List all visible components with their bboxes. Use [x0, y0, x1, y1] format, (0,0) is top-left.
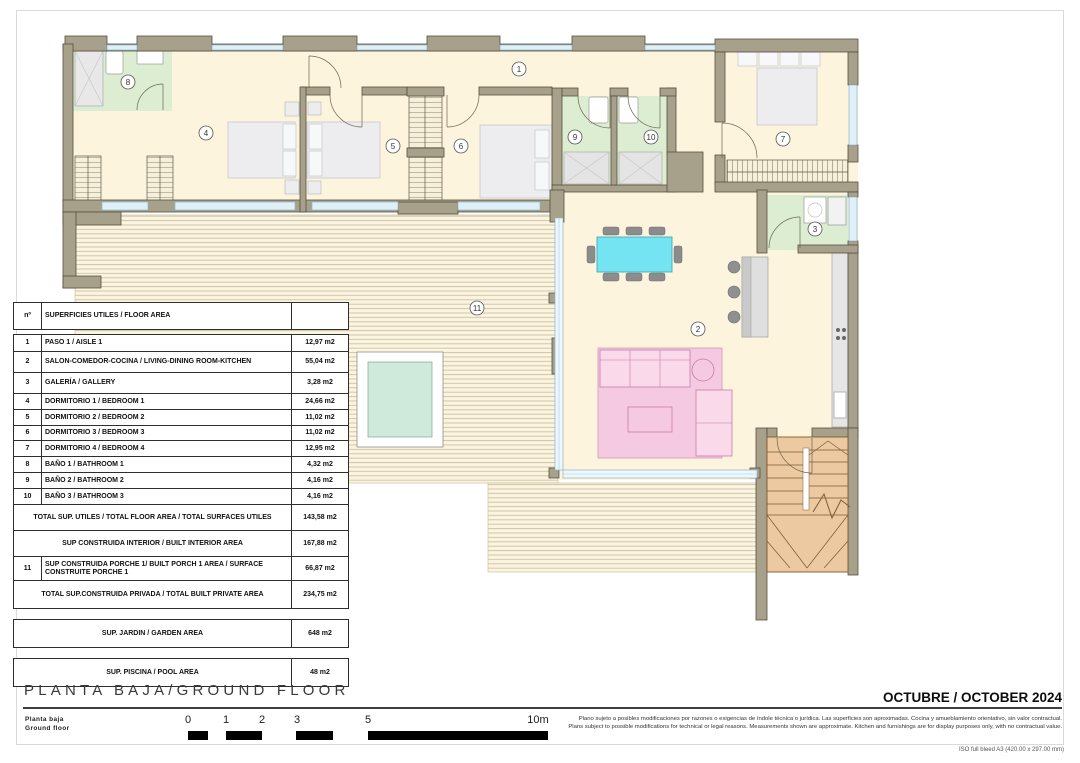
lounge-set: [598, 348, 732, 458]
room-label-8: 8: [121, 75, 135, 89]
header-area-col: [291, 303, 348, 329]
floor-area-table: nº SUPERFICIES UTILES / FLOOR AREA 1 PAS…: [13, 302, 349, 687]
area-table-header: nº SUPERFICIES UTILES / FLOOR AREA: [13, 302, 349, 330]
disclaimer-es: Plano sujeto a posibles modificaciones p…: [562, 716, 1062, 724]
table-row: 1 PASO 1 / AISLE 1 12,97 m2: [14, 335, 348, 351]
svg-text:8: 8: [126, 78, 131, 87]
table-row: 10 BAÑO 3 / BATHROOM 3 4,16 m2: [14, 488, 348, 504]
room-label-1: 1: [512, 62, 526, 76]
scale-segment: [188, 731, 208, 740]
room-label-6: 6: [454, 139, 468, 153]
svg-text:10: 10: [647, 133, 656, 142]
floor-name-es: Planta baja: [25, 715, 70, 724]
room-label-3: 3: [808, 222, 822, 236]
header-label-col: SUPERFICIES UTILES / FLOOR AREA: [41, 303, 291, 329]
scale-segment: [296, 731, 333, 740]
porch-row: 11 SUP CONSTRUIDA PORCHE 1/ BUILT PORCH …: [14, 556, 348, 580]
svg-text:9: 9: [573, 133, 578, 142]
table-row: 9 BAÑO 2 / BATHROOM 2 4,16 m2: [14, 472, 348, 488]
scale-segment: [368, 731, 548, 740]
svg-text:2: 2: [696, 325, 701, 334]
svg-text:11: 11: [473, 304, 482, 313]
scale-tick-0: 0: [185, 714, 191, 726]
scale-tick-10m: 10m: [527, 714, 548, 726]
total-private-row: TOTAL SUP.CONSTRUIDA PRIVADA / TOTAL BUI…: [14, 580, 348, 608]
scale-tick-3: 3: [294, 714, 300, 726]
drawing-sheet: 1 2 3 4 5 6 7 8 9 10 11 nº SUPERFICIES U…: [0, 0, 1080, 763]
svg-text:3: 3: [813, 225, 818, 234]
title-divider-line: [23, 707, 1062, 709]
scale-segment: [226, 731, 262, 740]
room-label-9: 9: [568, 130, 582, 144]
table-row: 5 DORMITORIO 2 / BEDROOM 2 11,02 m2: [14, 409, 348, 425]
disclaimer-en: Plans subject to possible modifications …: [562, 724, 1062, 732]
page-title: PLANTA BAJA/GROUND FLOOR: [24, 682, 350, 699]
table-row: 2 SALON-COMEDOR-COCINA / LIVING-DINING R…: [14, 351, 348, 372]
scale-tick-1: 1: [223, 714, 229, 726]
svg-text:6: 6: [459, 142, 464, 151]
room-label-11: 11: [470, 301, 484, 315]
table-row: 3 GALERÍA / GALLERY 3,28 m2: [14, 372, 348, 393]
room-label-7: 7: [776, 132, 790, 146]
scale-tick-2: 2: [259, 714, 265, 726]
area-table-body: 1 PASO 1 / AISLE 1 12,97 m2 2 SALON-COME…: [13, 334, 349, 609]
built-interior-row: SUP CONSTRUIDA INTERIOR / BUILT INTERIOR…: [14, 530, 348, 556]
room-label-4: 4: [199, 126, 213, 140]
table-row: 4 DORMITORIO 1 / BEDROOM 1 24,66 m2: [14, 393, 348, 409]
room-label-10: 10: [644, 130, 658, 144]
svg-text:4: 4: [204, 129, 209, 138]
scale-tick-5: 5: [365, 714, 371, 726]
total-floor-area-row: TOTAL SUP. UTILES / TOTAL FLOOR AREA / T…: [14, 504, 348, 530]
table-row: 8 BAÑO 1 / BATHROOM 1 4,32 m2: [14, 456, 348, 472]
staircase: [767, 437, 850, 572]
floor-name-en: Ground floor: [25, 724, 70, 733]
table-row: 7 DORMITORIO 4 / BEDROOM 4 12,95 m2: [14, 440, 348, 456]
svg-text:1: 1: [517, 65, 522, 74]
paper-size-note: ISO full bleed A3 (420.00 x 297.00 mm): [959, 747, 1064, 753]
drawing-date: OCTUBRE / OCTOBER 2024: [883, 690, 1062, 705]
pool: [357, 352, 443, 447]
table-row: 6 DORMITORIO 3 / BEDROOM 3 11,02 m2: [14, 425, 348, 440]
room-label-2: 2: [691, 322, 705, 336]
disclaimer-text: Plano sujeto a posibles modificaciones p…: [562, 716, 1062, 731]
garden-area-box: SUP. JARDIN / GARDEN AREA 648 m2: [13, 619, 349, 648]
room-label-5: 5: [386, 139, 400, 153]
kitchen-counter: [832, 253, 848, 427]
floor-name-label: Planta baja Ground floor: [25, 715, 70, 733]
laundry-appliances: [804, 197, 846, 225]
svg-text:5: 5: [391, 142, 396, 151]
header-number-col: nº: [14, 303, 41, 329]
svg-text:7: 7: [781, 135, 786, 144]
